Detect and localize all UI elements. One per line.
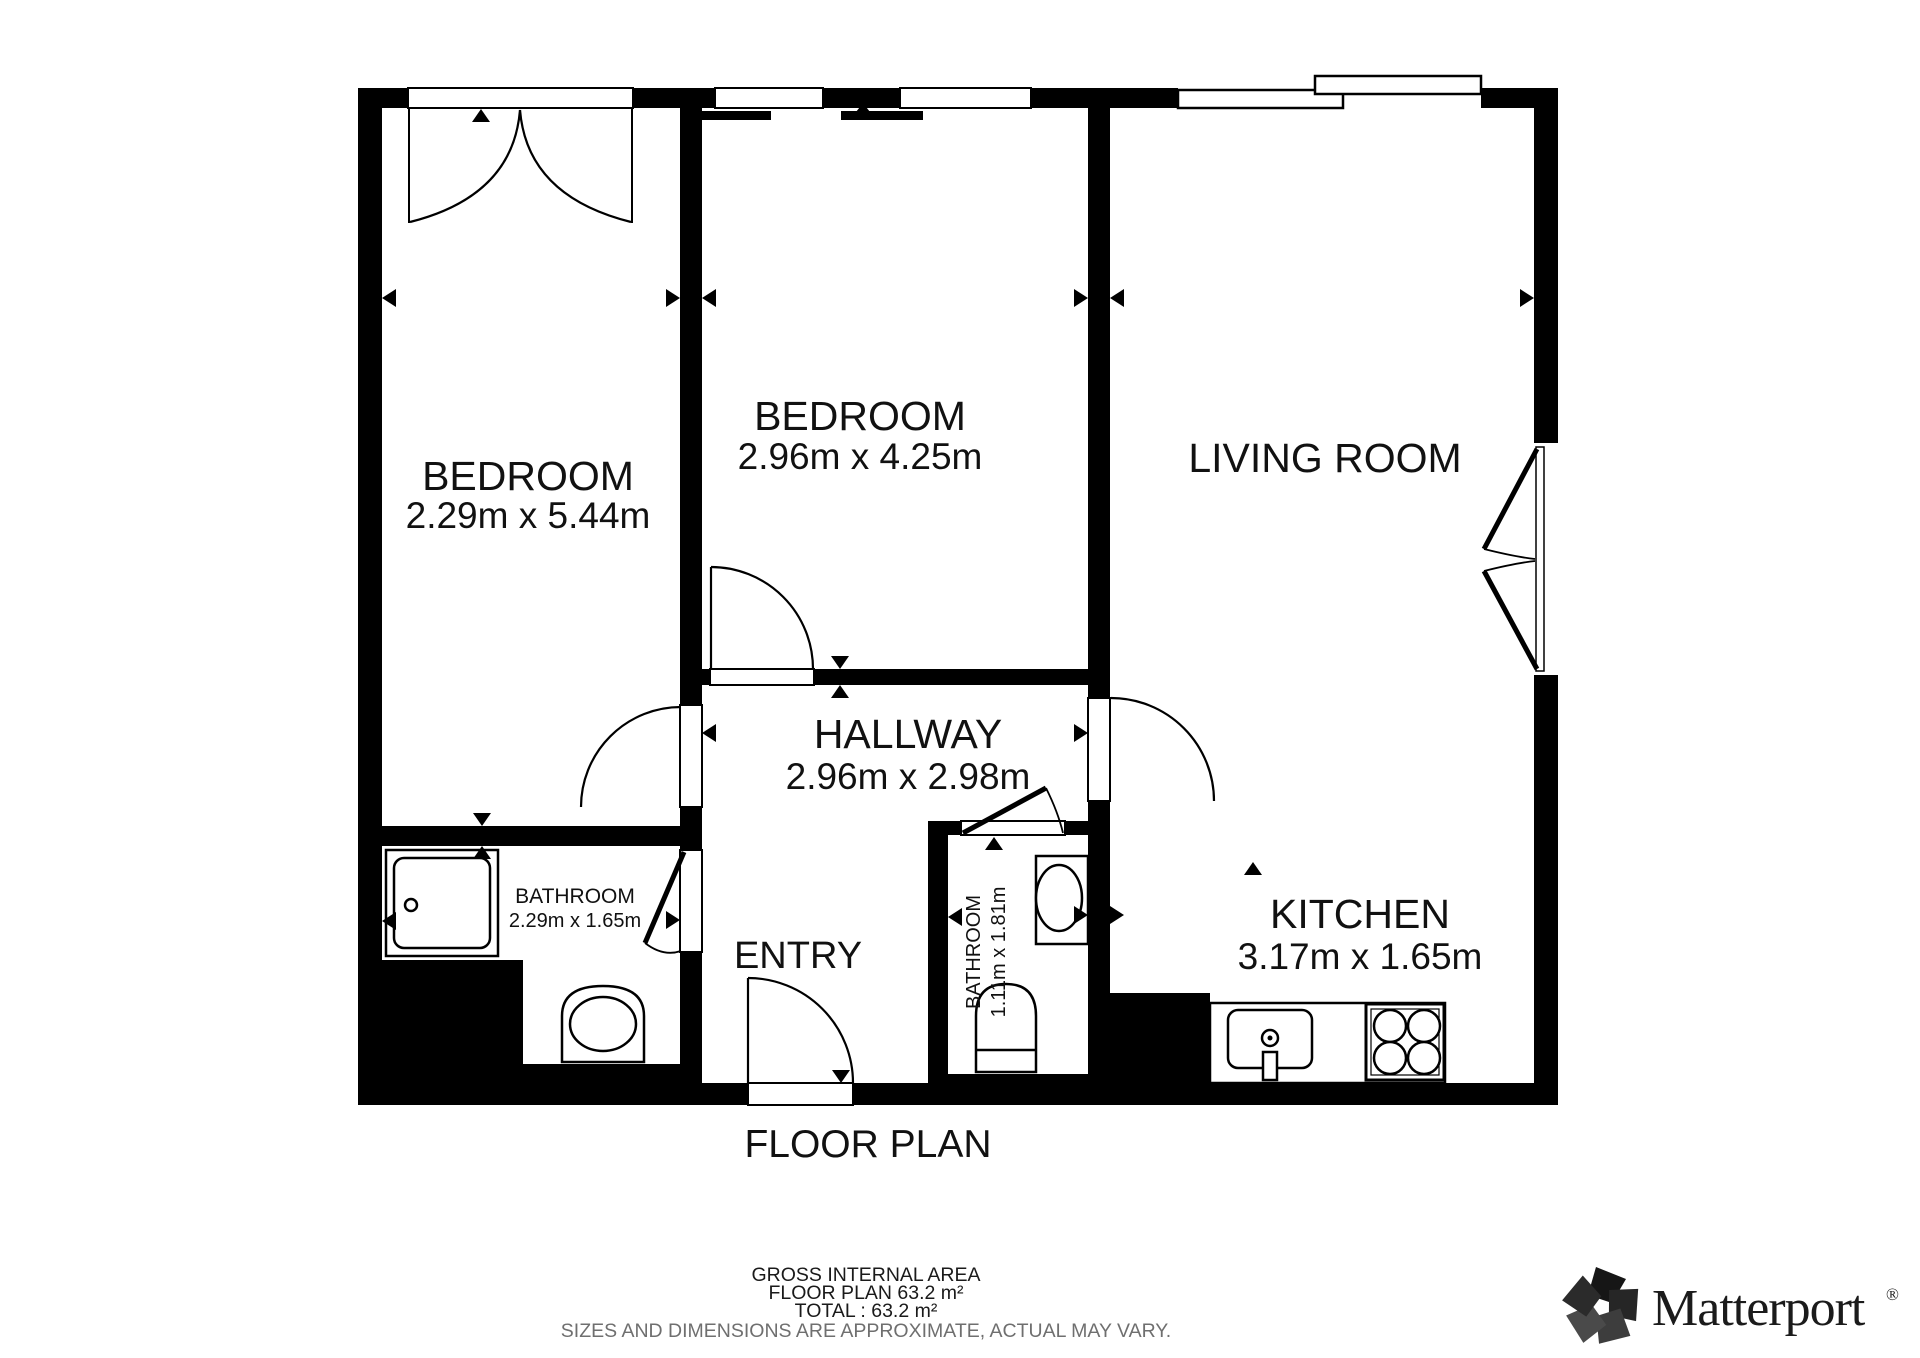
marker-icon	[472, 109, 490, 122]
marker-icon	[382, 289, 396, 307]
bathroom1-label: BATHROOM	[515, 885, 635, 908]
matterport-logo: Matterport ®	[1559, 1267, 1899, 1353]
shower-icon	[386, 850, 498, 956]
living-room-label: LIVING ROOM	[1188, 435, 1461, 481]
marker-icon	[1074, 289, 1088, 307]
entry-door-icon	[748, 978, 853, 1105]
windows	[408, 76, 1558, 675]
page-title: FLOOR PLAN	[744, 1123, 991, 1166]
marker-icon	[702, 289, 716, 307]
marker-icon	[831, 656, 849, 669]
floor-plan-drawing: BEDROOM 2.29m x 5.44m BEDROOM 2.96m x 4.…	[0, 0, 1920, 1358]
marker-icon	[666, 911, 680, 929]
marker-icon	[832, 1070, 850, 1083]
marker-icon	[1110, 906, 1124, 924]
bathroom1-dims: 2.29m x 1.65m	[509, 910, 641, 932]
marker-icon	[1244, 862, 1262, 875]
registered-mark: ®	[1886, 1285, 1899, 1304]
hallway-dims: 2.96m x 2.98m	[786, 756, 1031, 797]
bathroom2-label: BATHROOM	[963, 895, 985, 1009]
hallway-label: HALLWAY	[814, 711, 1002, 757]
marker-icon	[831, 685, 849, 698]
footer-block: FLOOR PLAN GROSS INTERNAL AREA FLOOR PLA…	[561, 1123, 1171, 1342]
living-room-door-icon	[1088, 698, 1214, 801]
disclaimer-line: SIZES AND DIMENSIONS ARE APPROXIMATE, AC…	[561, 1320, 1171, 1342]
kitchen-label: KITCHEN	[1270, 891, 1450, 937]
living-room-french-doors-icon	[1484, 443, 1558, 675]
marker-icon	[948, 908, 962, 926]
marker-icon	[666, 289, 680, 307]
bedroom1-label: BEDROOM	[422, 453, 634, 499]
bedroom2-dims: 2.96m x 4.25m	[738, 436, 983, 477]
marker-icon	[1520, 289, 1534, 307]
bathroom-sink-icon	[1036, 856, 1088, 944]
total-area-line: TOTAL : 63.2 m²	[795, 1300, 938, 1322]
floor-plan-page: BEDROOM 2.29m x 5.44m BEDROOM 2.96m x 4.…	[0, 0, 1920, 1358]
entry-label: ENTRY	[734, 935, 862, 977]
bedroom1-dims: 2.29m x 5.44m	[406, 495, 651, 536]
marker-icon	[985, 837, 1003, 850]
matterport-pinwheel-icon	[1559, 1267, 1647, 1353]
marker-icon	[1110, 289, 1124, 307]
marker-icon	[702, 724, 716, 742]
bedroom2-label: BEDROOM	[754, 393, 966, 439]
bathroom1-door-icon	[645, 850, 702, 953]
marker-icon	[473, 813, 491, 826]
bedroom1-door-icon	[581, 705, 702, 807]
cooktop-icon	[1366, 1004, 1444, 1080]
toilet-icon	[562, 986, 644, 1062]
bedroom1-window-icon	[408, 88, 633, 223]
matterport-wordmark: Matterport	[1652, 1280, 1866, 1337]
living-room-windows-icon	[1178, 76, 1481, 108]
bathroom2-dims: 1.11m x 1.81m	[988, 887, 1010, 1018]
kitchen-dims: 3.17m x 1.65m	[1238, 936, 1483, 977]
bedroom2-door-icon	[710, 567, 814, 685]
marker-icon	[1074, 724, 1088, 742]
